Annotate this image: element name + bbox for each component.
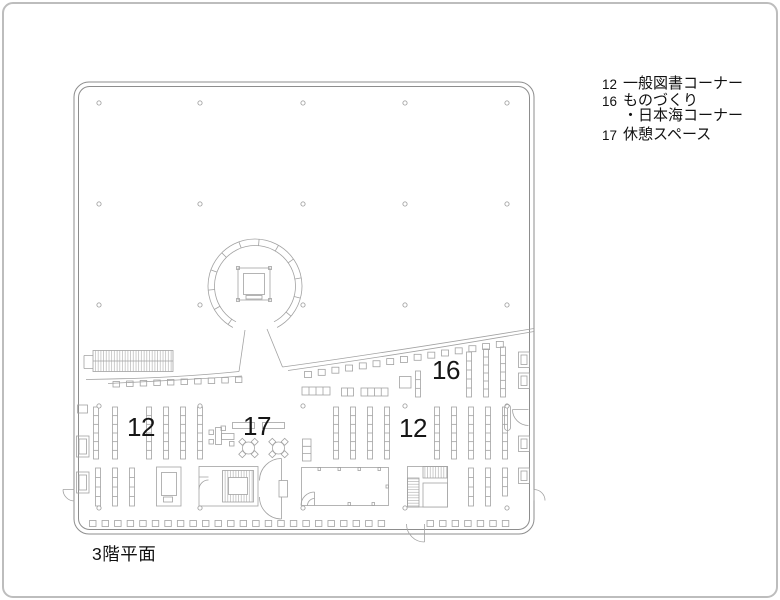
legend-num: 12	[602, 76, 623, 93]
bridge-corridor	[239, 329, 283, 372]
elevator-core	[237, 267, 272, 302]
area-label-rest-space: 17	[243, 413, 271, 439]
legend-item-17: 17 休憩スペース	[602, 127, 777, 144]
center-room	[301, 468, 389, 506]
service-elevator	[157, 467, 182, 506]
legend: 12 一般図書コーナー 16 ものづくり ・日本海コーナー 17 休憩スペース	[602, 76, 777, 143]
floor-plan-page: 12 17 16 12 12 一般図書コーナー 16 ものづくり ・日本海コーナ…	[0, 0, 780, 600]
l-stair	[408, 467, 448, 508]
legend-item-12: 12 一般図書コーナー	[602, 76, 777, 93]
building-outline	[74, 82, 534, 534]
double-door	[260, 459, 288, 520]
legend-num: 17	[602, 127, 623, 144]
area-label-general-books-left: 12	[127, 414, 155, 440]
legend-text: 一般図書コーナー	[623, 76, 743, 93]
legend-text: ものづくり ・日本海コーナー	[623, 93, 743, 124]
legend-item-16: 16 ものづくり ・日本海コーナー	[602, 93, 777, 124]
rest-space-furniture	[209, 377, 411, 462]
legend-text: 休憩スペース	[623, 127, 711, 144]
area-label-monozukuri: 16	[432, 357, 460, 383]
drawing-title: 3階平面	[92, 541, 156, 566]
area-label-general-books-right: 12	[399, 415, 427, 441]
bookshelves	[90, 101, 510, 527]
legend-num: 16	[602, 93, 623, 124]
escalator	[84, 351, 173, 372]
circular-stair	[208, 239, 302, 327]
stair-room	[199, 467, 258, 507]
